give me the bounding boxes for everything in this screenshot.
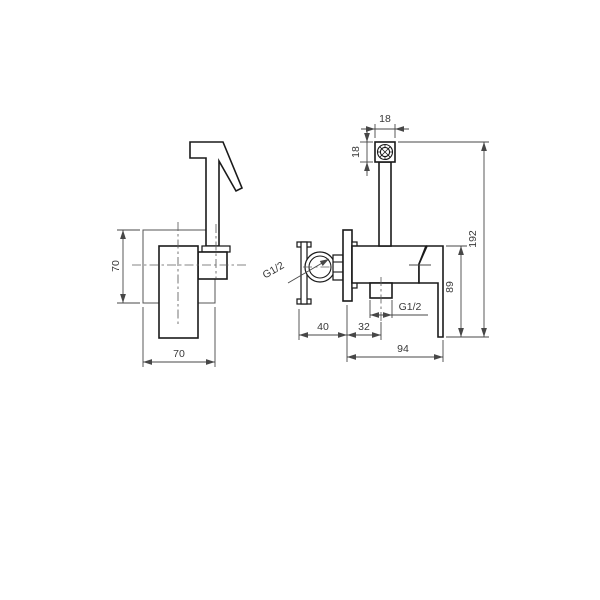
side-head-knurl (378, 145, 393, 160)
side-dim-head-height: 18 (350, 128, 373, 176)
side-wall-plate (343, 230, 352, 301)
side-mixer-body (352, 246, 426, 283)
side-connector-nut (333, 255, 343, 280)
dim-label-inlet-thread: G1/2 (261, 259, 287, 281)
dim-label-plate-height: 70 (110, 260, 122, 272)
dim-label-head-width: 18 (379, 113, 391, 125)
dim-label-outlet-thread: G1/2 (399, 301, 422, 313)
dim-label-overall-height: 192 (467, 230, 479, 248)
side-dim-total-depth: 94 (347, 340, 443, 362)
front-holder-block (198, 252, 227, 279)
side-sprayer-stem (379, 162, 391, 246)
dim-label-handle-height: 89 (444, 281, 456, 293)
front-mixer-handle (159, 246, 198, 338)
dim-label-outlet-offset: 32 (358, 321, 370, 333)
front-view: 70 70 (110, 142, 248, 367)
side-handle-lever (419, 246, 443, 337)
dim-label-inlet-offset: 40 (317, 321, 329, 333)
side-dim-inlet-offset: 40 32 (299, 305, 381, 362)
side-view: 18 18 192 89 (261, 113, 489, 362)
side-dim-handle-height: 89 (444, 246, 467, 337)
drawing-canvas: 70 70 (0, 0, 600, 600)
dim-label-plate-width: 70 (173, 348, 185, 360)
dim-label-total-depth: 94 (397, 343, 409, 355)
front-dim-plate-height: 70 (110, 230, 140, 303)
dim-label-head-height: 18 (350, 146, 362, 158)
side-dim-outlet-thread: G1/2 (370, 300, 428, 318)
side-dim-head-width: 18 (361, 113, 409, 138)
